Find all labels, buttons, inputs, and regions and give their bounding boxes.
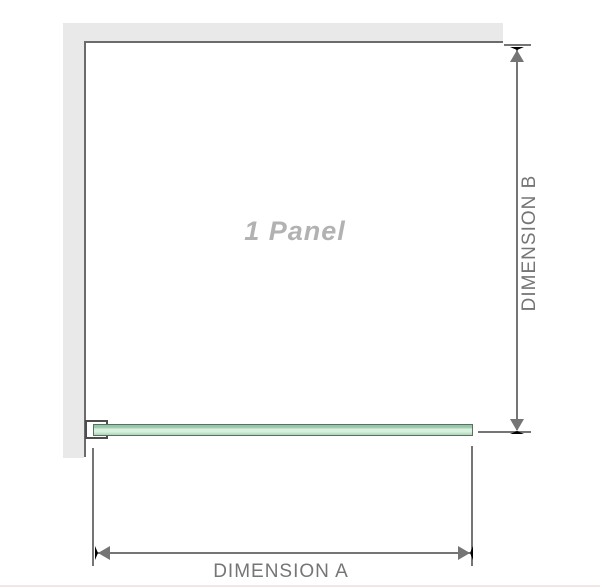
dimension-a-arrowhead-left-icon	[95, 546, 110, 560]
dimension-b-label: DIMENSION B	[520, 163, 540, 323]
shower-panel-diagram: 1 Panel DIMENSION B DIMENSION A	[0, 0, 600, 588]
dimension-b-arrowhead-up-icon	[510, 47, 524, 62]
dimension-a-line	[95, 552, 470, 554]
bottom-divider-line	[0, 585, 600, 587]
dimension-b-top-tick	[504, 44, 531, 46]
wall-left-edge-line	[84, 41, 86, 457]
wall-top-edge-line	[84, 41, 503, 43]
dimension-b-arrowhead-down-icon	[510, 419, 524, 434]
wall-left-bar	[63, 23, 84, 458]
dimension-a-left-extension-line	[92, 448, 94, 566]
dimension-b-line	[516, 47, 518, 430]
dimension-a-arrowhead-right-icon	[458, 546, 473, 560]
dimension-a-label: DIMENSION A	[151, 561, 411, 583]
wall-top-bar	[63, 23, 503, 42]
glass-panel	[93, 424, 473, 436]
panel-count-label: 1 Panel	[200, 214, 390, 248]
